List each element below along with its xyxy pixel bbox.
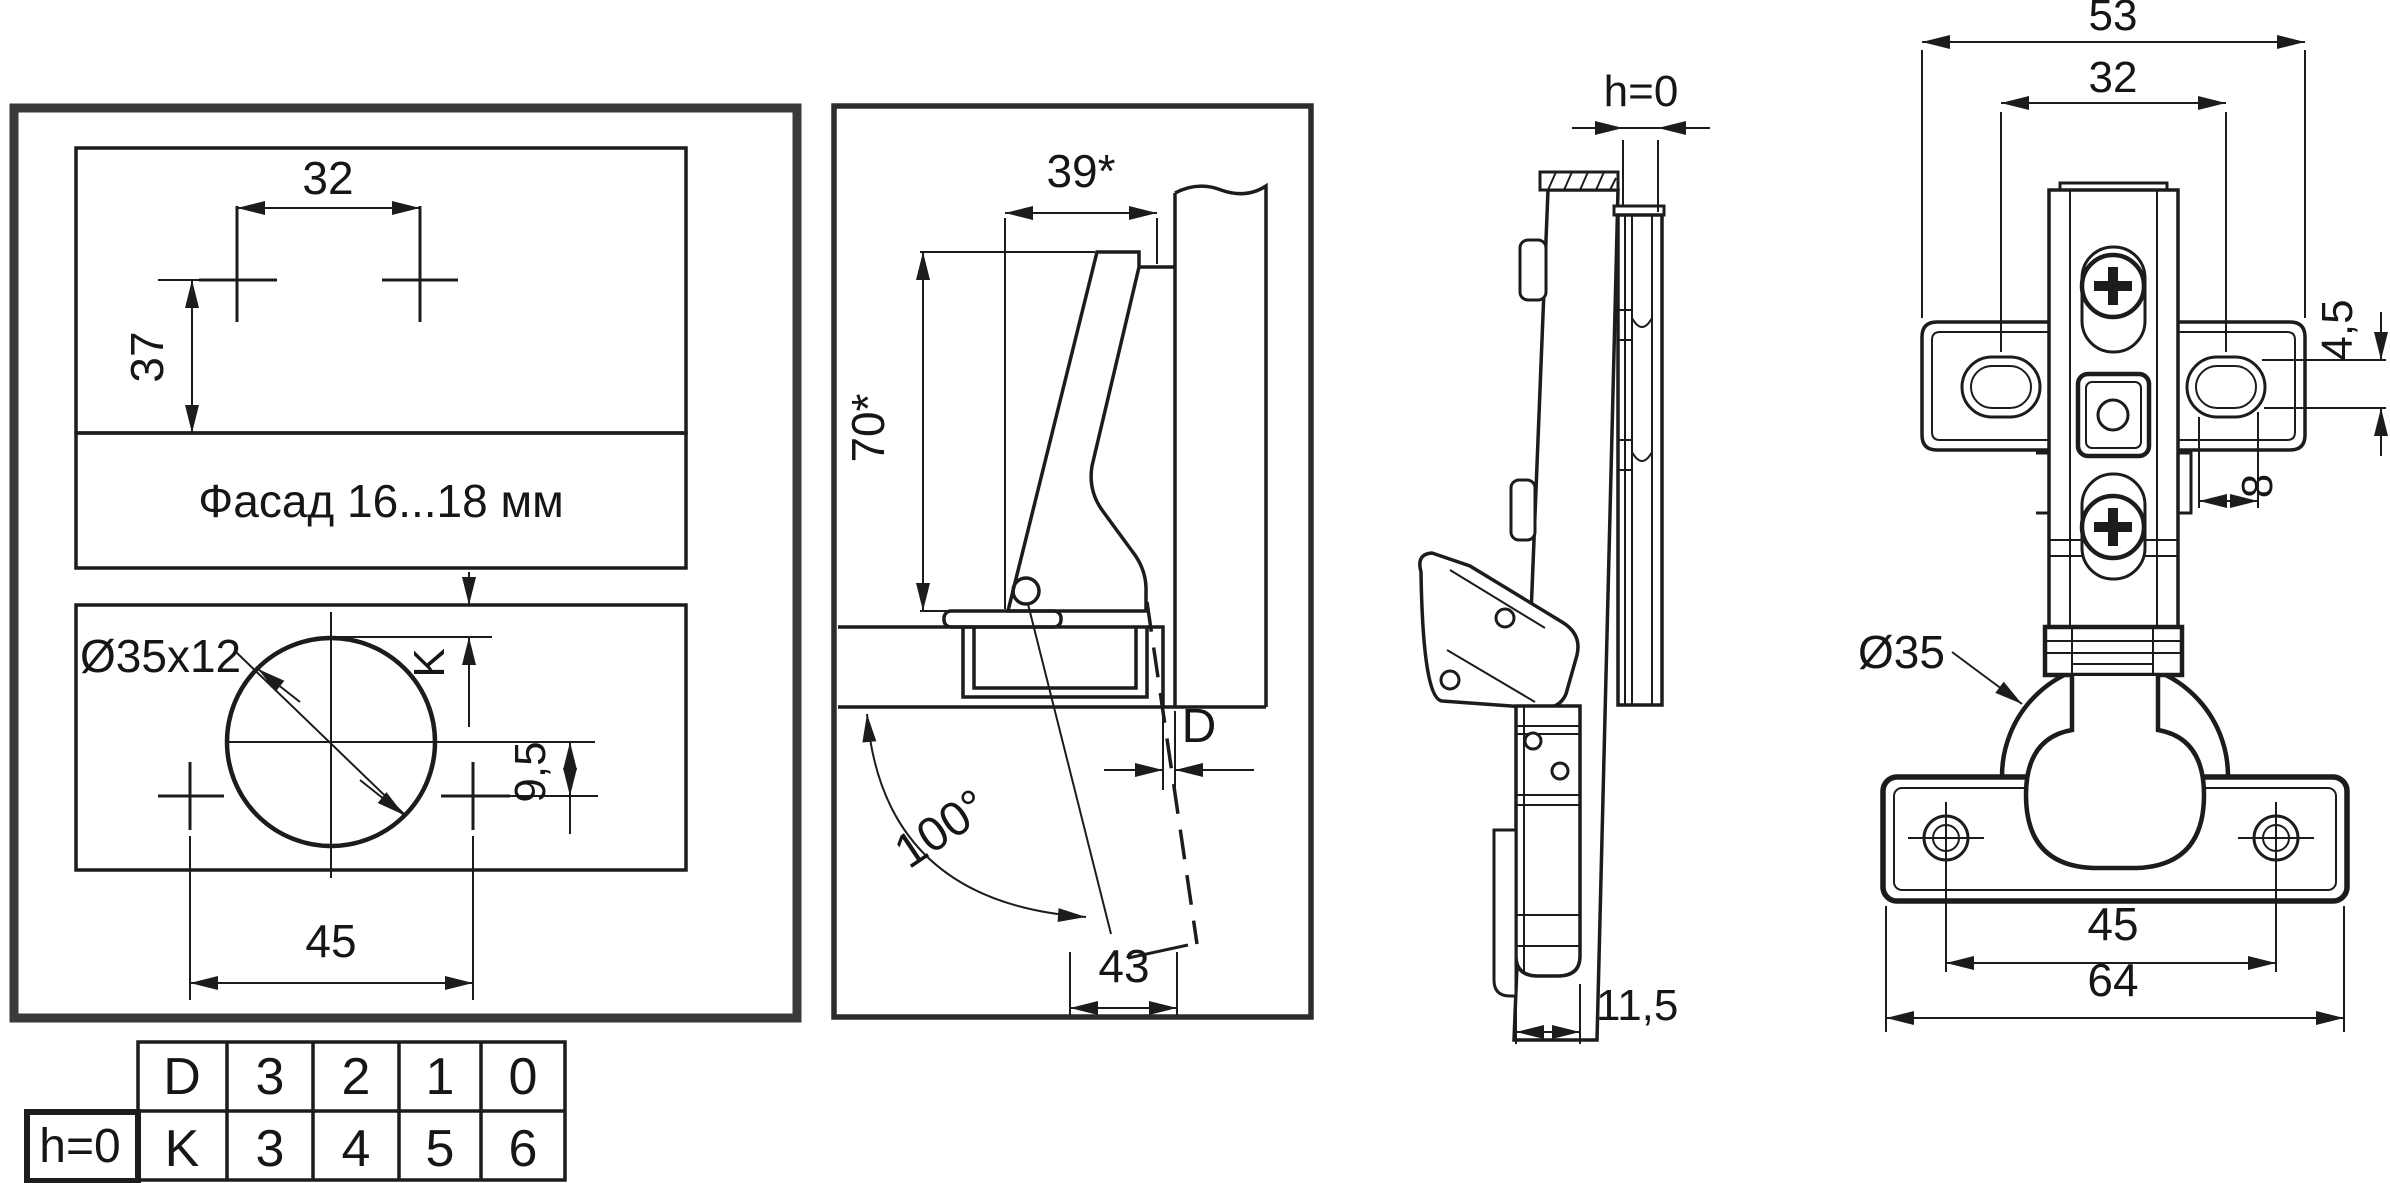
clip-tab [1520,240,1546,300]
dim-70-label: 70* [842,393,894,462]
dim-8-label: 8 [2233,474,2282,498]
table-cell: 5 [426,1120,455,1178]
opening-angle: 100° [867,604,1111,934]
dim-9-5-label: 9,5 [506,741,555,802]
offset-table: h=0 D 3 2 1 0 K 3 4 5 6 [27,1042,565,1181]
angle-label: 100° [885,779,997,878]
clip-tab [1511,480,1535,540]
dim-70: 70* [842,252,1095,611]
screw-head [1441,671,1459,689]
table-row1-header: D [163,1048,201,1106]
hinge-technical-drawing: Фасад 16...18 мм 32 37 Ø35x12 [0,0,2390,1183]
dim-39-label: 39* [1046,145,1115,197]
cup-flange-edge [1494,830,1516,996]
dim-45-front-label: 45 [2087,898,2138,950]
screw-head [1552,763,1568,779]
door-section [1008,252,1146,611]
table-cell: 3 [256,1048,285,1106]
screw-head [1496,609,1514,627]
dim-32-label: 32 [302,152,353,204]
dim-11-5-label: 11,5 [1596,981,1678,1030]
cam-window [2078,374,2149,456]
facade-label: Фасад 16...18 мм [198,475,563,527]
hinge-knuckle [2045,627,2182,675]
cabinet-side-board [1175,186,1266,707]
section-frame [834,106,1311,1017]
dim-d-label: D [1182,700,1217,753]
cup-hole-label: Ø35x12 [80,630,241,682]
condition-label: h=0 [39,1120,120,1173]
dim-h0-label: h=0 [1604,67,1679,116]
dim-32-front-label: 32 [2089,53,2138,102]
drawing-canvas: Фасад 16...18 мм 32 37 Ø35x12 [0,0,2390,1183]
cup-flange-section [944,611,1061,627]
dim-45-label: 45 [305,915,356,967]
template-frame [14,108,797,1018]
cup-diameter-callout: Ø35 [1858,626,2022,704]
table-cell: 1 [426,1048,455,1106]
dim-d-gap: D [1104,700,1254,790]
table-cell: 0 [509,1048,538,1106]
dim-k-label: K [405,648,454,677]
dim-8: 8 [2199,412,2282,508]
table-cell: 2 [342,1048,371,1106]
dim-43-label: 43 [1098,940,1149,992]
table-cell: 4 [342,1120,371,1178]
hinge-front-view: 53 32 [1858,0,2386,1032]
hinge-side-view: h=0 11,5 [1420,67,1710,1044]
dim-64-label: 64 [2087,954,2138,1006]
cabinet-bottom-board [838,627,1266,707]
dim-39: 39* [1005,145,1157,609]
table-row2-header: K [165,1120,200,1178]
arm-boot [2026,676,2204,868]
dim-37-label: 37 [121,331,173,382]
dim-53-label: 53 [2089,0,2138,40]
door-closed-position [1147,602,1197,944]
table-cell: 3 [256,1120,285,1178]
dim-4-5-label: 4,5 [2313,299,2362,360]
table-cell: 6 [509,1120,538,1178]
cup-section [963,627,1147,697]
cup-diameter-label: Ø35 [1858,626,1945,678]
drilling-template-panel: Фасад 16...18 мм 32 37 Ø35x12 [14,108,797,1018]
screw-head [1525,733,1541,749]
hinge-pivot [1013,578,1039,604]
section-view-panel: 39* 70* 100° D 43 [834,106,1311,1017]
